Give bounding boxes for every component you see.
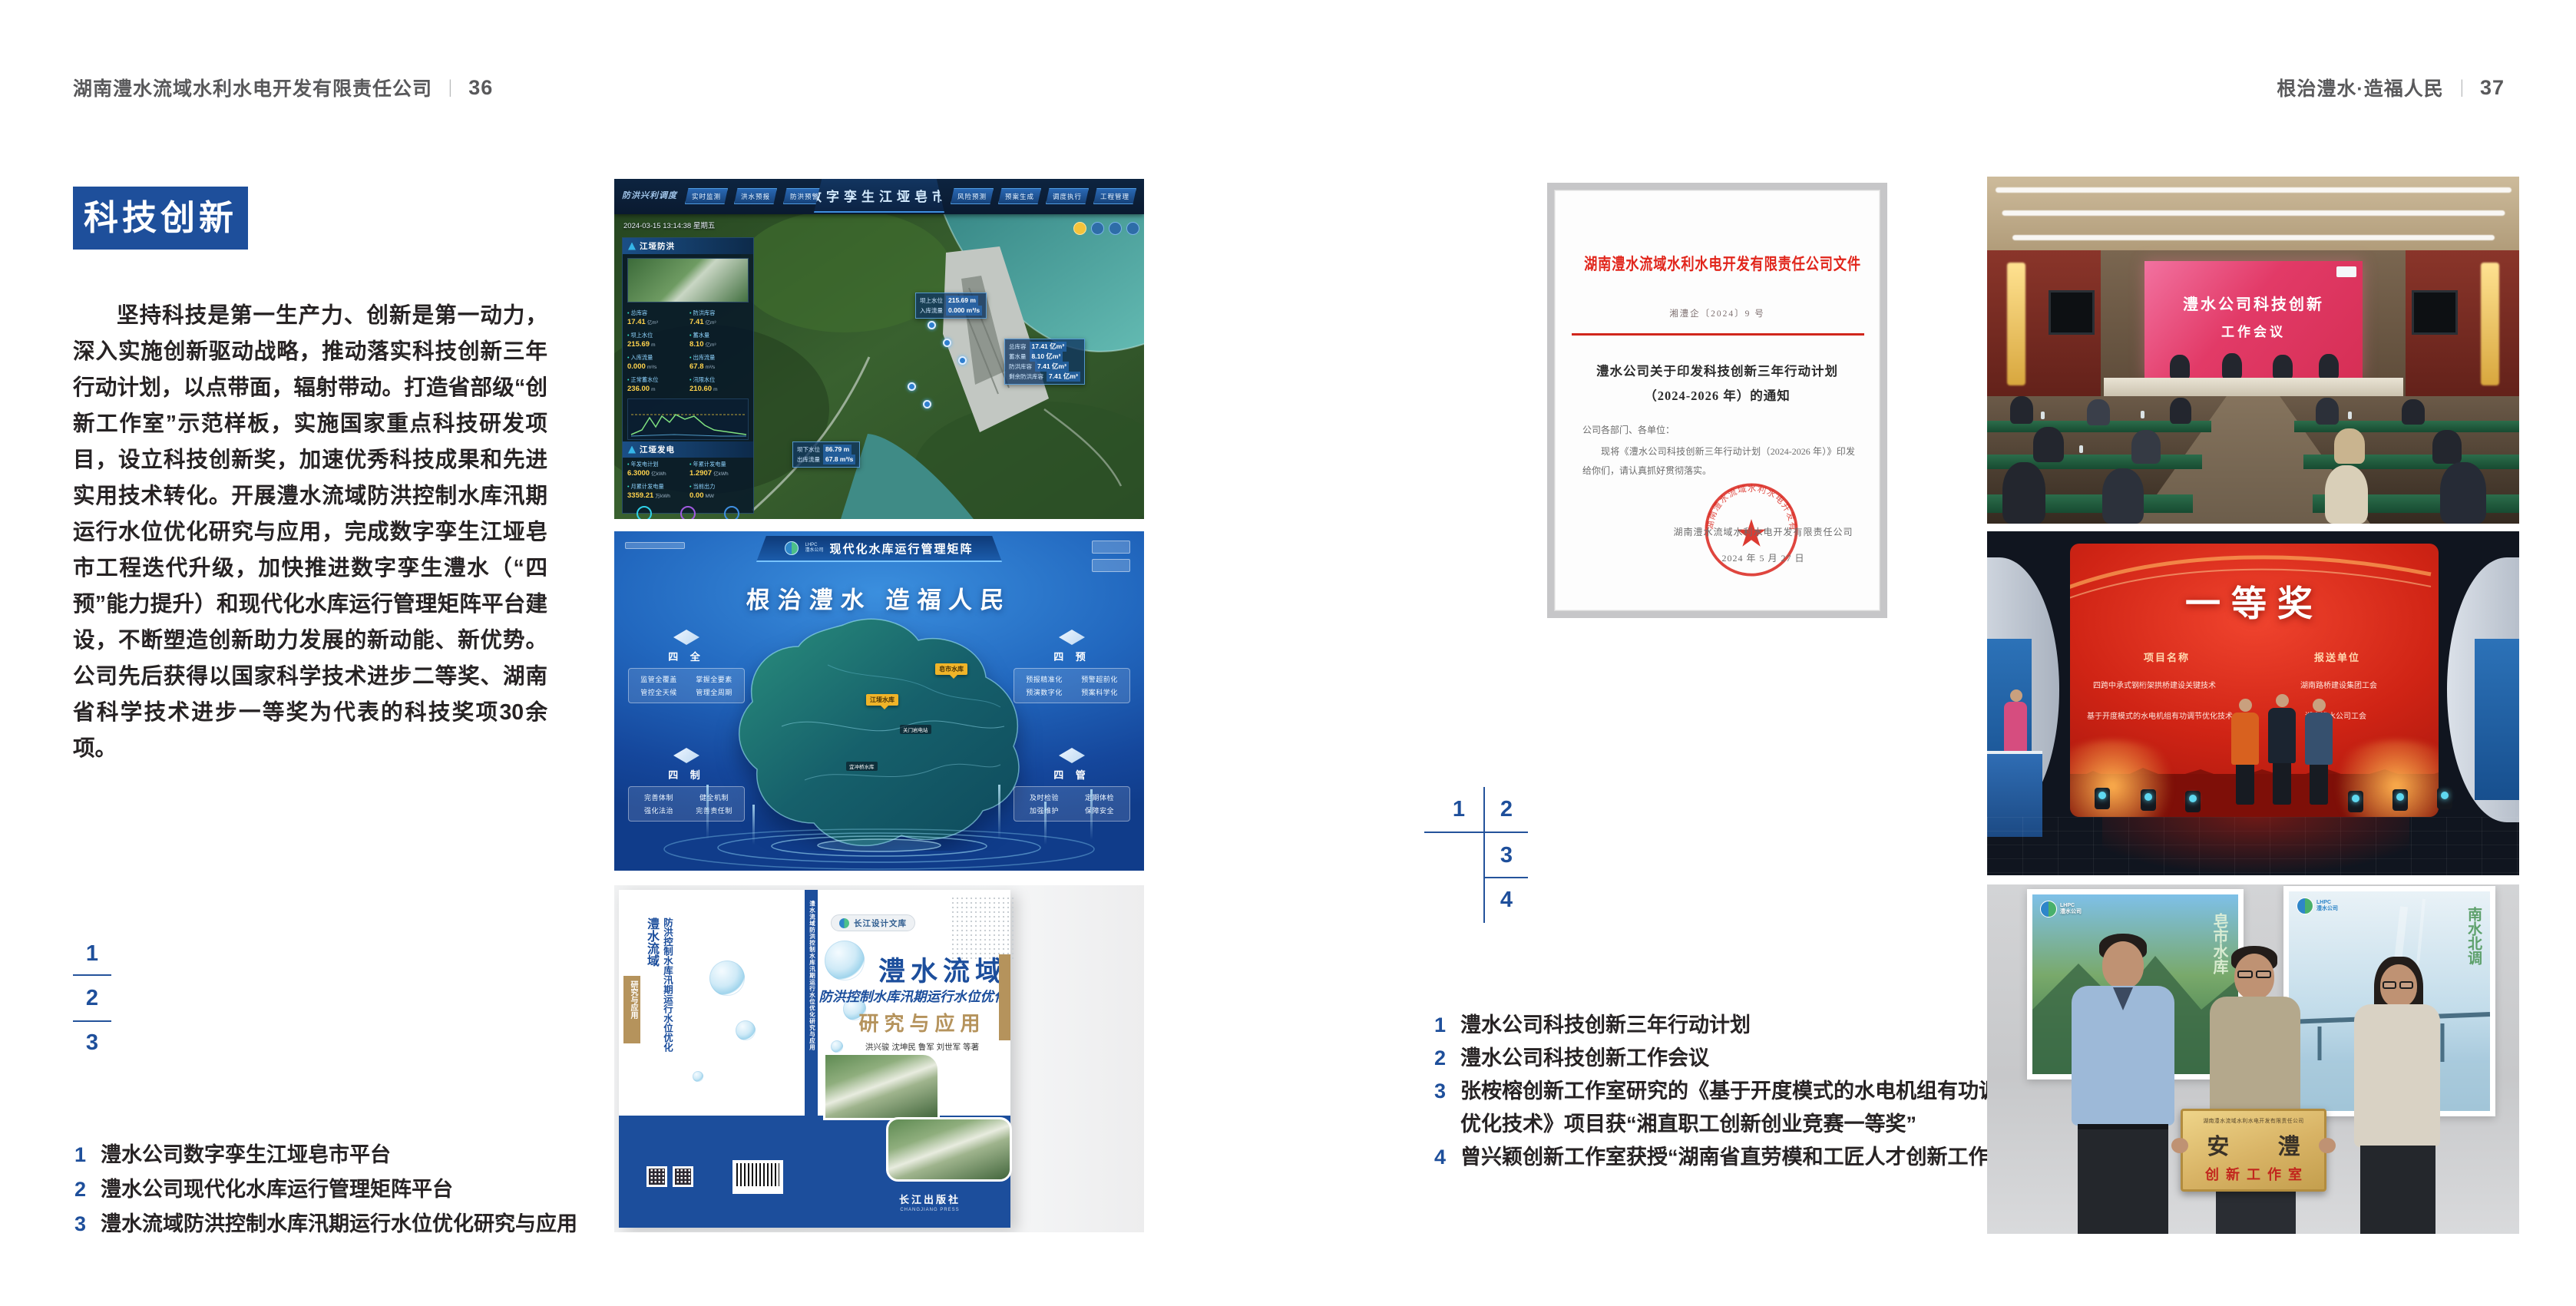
right-page-header: 根治澧水·造福人民 | 37: [2277, 74, 2505, 101]
power-panel-title: 江垭发电: [640, 444, 675, 455]
audience-person: [2402, 399, 2425, 425]
figure-index-2: 2: [73, 986, 111, 1011]
dashboard-title-plate: 数字孪生江垭皂市: [814, 179, 944, 213]
lhpc-logo-text: LHPC澧水公司: [805, 543, 823, 554]
stat-cell: 蓄水量8.10亿m³: [689, 330, 749, 351]
map-tag-guanmenyan[interactable]: 关门岩电站: [900, 725, 931, 734]
body-paragraph: 坚持科技是第一生产力、创新是第一动力，深入实施创新驱动战略，推动落实科技创新三年…: [73, 298, 547, 767]
index-divider: [73, 974, 111, 976]
stage-light-fixture: [2185, 791, 2201, 812]
award-row-project: 基于开度模式的水电机组有功调节优化技术: [2087, 709, 2233, 721]
light-pillar: [706, 785, 709, 840]
front-title-tail: 研究与应用: [849, 1008, 995, 1037]
page-number-36: 36: [468, 76, 493, 100]
audience-person: [2325, 465, 2368, 524]
figure-digital-twin-platform: 防洪兴利调度 实时监测 洪水预报 防洪预警 数字孪生江垭皂市 风险预测 预案生成…: [614, 179, 1144, 519]
caption-text: 澧水流域防洪控制水库汛期运行水位优化研究与应用: [101, 1208, 577, 1241]
stat-cell: 当前出力0.00MW: [689, 481, 749, 502]
caption-text: 澧水公司数字孪生江垭皂市平台: [101, 1139, 391, 1172]
caption-row: 4 曾兴颖创新工作室获授“湖南省直劳模和工匠人才创新工作室”: [1434, 1141, 2020, 1174]
audience-person: [2002, 462, 2045, 524]
tab-project-management[interactable]: 工程管理: [1093, 188, 1136, 204]
caption-row: 1 澧水公司数字孪生江垭皂市平台: [74, 1139, 391, 1172]
award-led-screen: 一等奖 项目名称 报送单位 四跨中承式钢桁架拱桥建设关键技术 湖南路桥建设集团工…: [2070, 544, 2439, 817]
panel-logo-icon: [628, 446, 636, 454]
audience-person: [2440, 462, 2486, 524]
water-level-chart: [627, 398, 749, 440]
gate-marker-icon[interactable]: [943, 339, 951, 347]
upstream-level-tag: 坝上水位215.69 m 入库流量0.000 m³/s: [915, 293, 987, 319]
water-bottle: [2079, 445, 2083, 453]
caption-row: 1 澧水公司科技创新三年行动计划: [1434, 1009, 1751, 1042]
audience-person: [2316, 398, 2339, 425]
caption-text: 曾兴颖创新工作室获授“湖南省直劳模和工匠人才创新工作室”: [1460, 1141, 2020, 1174]
document-page: 湖南澧水流域水利水电开发有限责任公司文件 湘澧企〔2024〕9 号 澧水公司关于…: [1554, 190, 1880, 611]
column-header-unit: 报送单位: [2314, 650, 2360, 664]
lhpc-logo-text: LHPC澧水公司: [2060, 903, 2082, 915]
caption-number: 3: [74, 1208, 88, 1241]
water-droplet: [736, 1020, 756, 1040]
photo-workshop-plaque: LHPC澧水公司 皂市水库 LHPC澧水公司 南水北调: [1987, 884, 2519, 1234]
index-divider: [73, 1020, 111, 1022]
header-divider: |: [2460, 77, 2463, 98]
turbine-gauges: [623, 504, 753, 519]
figure-official-document: 湖南澧水流域水利水电开发有限责任公司文件 湘澧企〔2024〕9 号 澧水公司关于…: [1547, 183, 1887, 618]
map-tag-jiangya[interactable]: 江垭水库: [866, 694, 898, 706]
gate-marker-icon[interactable]: [923, 400, 931, 408]
awardee-legs: [2310, 765, 2328, 805]
series-name: 长江设计文库: [854, 918, 907, 929]
screen-title-line2: 工作会议: [2144, 321, 2363, 340]
figure-index-1: 1: [73, 941, 111, 967]
gauge-icon: [724, 506, 739, 519]
header-divider: |: [448, 77, 451, 98]
caption-row: 3 张桉榕创新工作室研究的《基于开度模式的水电机组有功调节优化技术》项目获“湘直…: [1434, 1075, 2033, 1141]
publisher-name: 长江出版社: [872, 1192, 987, 1206]
water-bottle: [2041, 412, 2045, 419]
document-red-rule: [1572, 333, 1864, 336]
audience-person: [2432, 430, 2462, 464]
light-pillar: [1090, 789, 1093, 840]
figure-index-3: 3: [73, 1030, 111, 1056]
company-name: 湖南澧水流域水利水电开发有限责任公司: [73, 74, 432, 101]
stat-cell: 月累计发电量3359.21万kWh: [627, 481, 686, 502]
person-trousers: [2360, 1146, 2435, 1234]
matrix-button[interactable]: [1092, 541, 1130, 554]
flood-panel-header: 江垭防洪: [623, 238, 753, 254]
document-date: 2024 年 5 月 27 日: [1555, 551, 1880, 564]
tab-risk-prediction[interactable]: 风险预测: [951, 188, 994, 204]
gauge-icon: [637, 506, 652, 519]
awardee-blue-uniform: [2305, 713, 2333, 765]
front-cover-tan-strip: [999, 954, 1010, 1040]
glasses-icon: [2383, 981, 2396, 989]
stat-cell: 正常蓄水位236.00m: [627, 375, 686, 395]
gauge-icon: [680, 506, 696, 519]
stat-cell: 年发电计划6.3000亿kWh: [627, 459, 686, 480]
tab-flood-forecast[interactable]: 洪水预报: [734, 188, 777, 204]
dashboard-title: 数字孪生江垭皂市: [809, 186, 950, 205]
back-cover-title-tail: 研究与应用: [627, 980, 639, 1019]
stat-cell: 防洪库容7.41亿m³: [689, 308, 749, 329]
audience-person: [2033, 427, 2064, 462]
photo-award-ceremony: 一等奖 项目名称 报送单位 四跨中承式钢桁架拱桥建设关键技术 湖南路桥建设集团工…: [1987, 531, 2519, 875]
brochure-spread: 湖南澧水流域水利水电开发有限责任公司 | 36 科技创新 坚持科技是第一生产力、…: [0, 0, 2576, 1306]
page-slogan: 根治澧水·造福人民: [2277, 74, 2443, 101]
document-salutation: 公司各部门、各单位：: [1582, 421, 1855, 440]
poster-calligraphy: 皂市水库: [2208, 913, 2230, 974]
photo-innovation-meeting: 澧水公司科技创新 工作会议: [1987, 177, 2519, 524]
rostrum-person: [2170, 355, 2190, 379]
qr-code: [673, 1166, 693, 1187]
power-stats-grid: 年发电计划6.3000亿kWh 年累计发电量1.2907亿kWh 月累计发电量3…: [623, 458, 753, 504]
locate-icon[interactable]: [1109, 222, 1122, 235]
workshop-plaque: 湖南澧水流域水利水电开发有限责任公司 安 澧 创新工作室: [2181, 1109, 2326, 1192]
figure-index-1: 1: [1443, 797, 1474, 822]
audience-person: [2334, 428, 2365, 464]
isbn-barcode: [732, 1160, 783, 1194]
tab-realtime-monitoring[interactable]: 实时监测: [685, 188, 728, 204]
qr-code: [646, 1166, 667, 1187]
lhpc-logo-text: LHPC澧水公司: [2316, 900, 2338, 912]
person-trousers: [2078, 1126, 2168, 1234]
wall-tv-screen: [2049, 290, 2095, 335]
host-head: [2010, 689, 2022, 702]
capacity-tag: 总库容17.41 亿m³ 蓄水量8.10 亿m³ 防洪库容7.41 亿m³ 剩余…: [1004, 339, 1085, 385]
stage-light-fixture: [2392, 789, 2408, 811]
awardee-head: [2313, 699, 2326, 712]
light-pillar: [1044, 802, 1047, 845]
document-number: 湘澧企〔2024〕9 号: [1555, 307, 1880, 319]
panel-icon: [673, 748, 699, 763]
awardee-head: [2239, 699, 2252, 712]
spine-title: 澧水流域防洪控制水库汛期运行水位优化研究与应用: [809, 901, 817, 1131]
index-grid-vline: [1483, 787, 1485, 923]
poster-calligraphy: 南水北调: [2463, 907, 2484, 965]
panel-siquan: 四 全 监管全覆盖掌握全要素 管控全天候管理全周期: [628, 630, 745, 703]
caption-row: 3 澧水流域防洪控制水库汛期运行水位优化研究与应用: [74, 1208, 577, 1241]
caption-number: 2: [74, 1173, 88, 1206]
wall-tv-screen: [2412, 290, 2458, 335]
award-row-unit: 湖南路桥建设集团工会: [2300, 679, 2377, 690]
stage-side-screen: [2475, 639, 2519, 800]
stat-cell: 入库流量0.000m³/s: [627, 352, 686, 373]
plaque-name: 安 澧: [2183, 1129, 2324, 1161]
publisher-latin: CHANGJIANG PRESS: [872, 1208, 987, 1212]
screen-logo: [2336, 266, 2356, 277]
power-panel-header: 江垭发电: [623, 441, 753, 458]
audience-person: [2170, 398, 2191, 424]
stat-cell: 汛限水位210.60m: [689, 375, 749, 395]
floor-reflection: [2102, 817, 2409, 875]
lhpc-logo: LHPC澧水公司: [2297, 898, 2338, 914]
lhpc-logo-icon: [785, 541, 799, 555]
document-red-header: 湖南澧水流域水利水电开发有限责任公司文件: [1584, 252, 1850, 275]
tab-plan-generation[interactable]: 预案生成: [998, 188, 1041, 204]
series-badge: 长江设计文库: [831, 914, 915, 931]
awardee-orange-jacket: [2231, 713, 2259, 765]
ripple-rings-decoration: [649, 802, 1109, 871]
back-cover-title-sub: 防洪控制水库汛期运行水位优化: [660, 918, 675, 1094]
lhpc-logo-icon: [2040, 901, 2057, 918]
figure-index-2: 2: [1491, 797, 1522, 822]
stage-light-fixture: [2348, 791, 2363, 812]
belt: [2078, 1124, 2168, 1129]
panel-icon: [1059, 630, 1085, 645]
map-tag-zaoshi[interactable]: 皂市水库: [935, 663, 967, 675]
flood-panel-title: 江垭防洪: [640, 240, 675, 252]
caption-text: 张桉榕创新工作室研究的《基于开度模式的水电机组有功调节优化技术》项目获“湘直职工…: [1460, 1075, 2032, 1141]
audience-person: [2087, 399, 2110, 425]
light-pillar: [752, 805, 755, 845]
authors-line: 洪兴骏 沈坤民 鲁军 刘世军 等著: [842, 1041, 1003, 1053]
awardee-legs: [2236, 765, 2254, 805]
plaque-company-line: 湖南澧水流域水利水电开发有限责任公司: [2183, 1116, 2324, 1124]
awardee-head: [2276, 694, 2289, 707]
index-grid-hline: [1424, 832, 1528, 833]
panel-icon: [1059, 748, 1085, 763]
gate-marker-icon[interactable]: [928, 321, 936, 329]
downstream-level-tag: 坝下水位86.79 m 出库流量67.8 m³/s: [792, 441, 860, 468]
matrix-title: 现代化水库运行管理矩阵: [830, 541, 974, 557]
water-bottle: [2348, 412, 2352, 419]
caption-number: 1: [74, 1139, 88, 1172]
stage-light-fixture: [2141, 789, 2156, 811]
audience-person: [2010, 396, 2033, 424]
audience-person: [2102, 468, 2144, 524]
caption-row: 2 澧水公司现代化水库运行管理矩阵平台: [74, 1173, 453, 1206]
back-cover-title-main: 澧水流域: [642, 918, 660, 1071]
page-number-37: 37: [2480, 76, 2505, 100]
book-cover-spread: 澧水流域 防洪控制水库汛期运行水位优化 研究与应用 澧水流域防洪控制水库汛期运行…: [619, 890, 1010, 1228]
figure-index-4: 4: [1491, 888, 1522, 913]
figure-index-3: 3: [1491, 843, 1522, 868]
water-droplet: [709, 960, 745, 996]
plaque-subtitle: 创新工作室: [2183, 1164, 2324, 1184]
screen-title-line1: 澧水公司科技创新: [2144, 292, 2363, 314]
ceiling-light-strip: [1996, 187, 2512, 193]
caption-number: 3: [1434, 1075, 1448, 1141]
panel-icon: [673, 630, 699, 645]
caption-row: 2 澧水公司科技创新工作会议: [1434, 1042, 1709, 1075]
map-tag-yichongqiao[interactable]: 宜冲桥水库: [846, 762, 878, 771]
host-pink-dress: [2004, 702, 2027, 752]
powerstation-photo: [886, 1117, 1012, 1182]
glasses-icon: [2256, 970, 2271, 978]
matrix-timestamp-placeholder: [625, 542, 685, 549]
changjiang-design-logo-icon: [839, 918, 849, 928]
dam-thumbnail-image: [627, 258, 749, 303]
document-body: 现将《澧水公司科技创新三年行动计划（2024-2026 年）》印发给你们，请认真…: [1582, 442, 1855, 481]
glasses-icon: [2399, 981, 2413, 989]
rostrum-person: [2222, 353, 2242, 379]
wall-lamp: [2481, 263, 2499, 385]
rostrum-person: [2319, 354, 2339, 379]
caption-text: 澧水公司科技创新工作会议: [1460, 1042, 1709, 1075]
panel-siyu: 四 预 预报精准化预警超前化 预演数字化预案科学化: [1014, 630, 1130, 703]
lhpc-logo-icon: [2297, 898, 2313, 914]
figure-matrix-platform: LHPC澧水公司 现代化水库运行管理矩阵 根治澧水 造福人民 江垭水库 皂市水库…: [614, 531, 1144, 871]
ceiling-light-strip: [2012, 235, 2495, 240]
dam-photo: [823, 1053, 940, 1120]
gate-marker-icon[interactable]: [958, 356, 967, 365]
stat-cell: 年累计发电量1.2907亿kWh: [689, 459, 749, 480]
index-grid-hline: [1483, 877, 1528, 878]
matrix-slogan: 根治澧水 造福人民: [614, 580, 1144, 615]
woman-beige-top: [2354, 1004, 2440, 1147]
stat-cell: 坝上水位215.69m: [627, 330, 686, 351]
matrix-header: LHPC澧水公司 现代化水库运行管理矩阵: [756, 536, 1002, 562]
stage-light-fixture: [2437, 788, 2452, 809]
left-data-panel: 江垭防洪 总库容17.41亿m³ 防洪库容7.41亿m³ 坝上水位215.69m…: [622, 237, 754, 514]
matrix-button[interactable]: [1092, 559, 1130, 572]
awardee-legs: [2273, 763, 2291, 805]
wall-lamp: [2007, 263, 2025, 385]
alert-icon[interactable]: [1073, 222, 1086, 235]
caption-number: 1: [1434, 1009, 1448, 1042]
dashboard-mode-label: 防洪兴利调度: [622, 189, 677, 201]
stat-cell: 出库流量67.8m³/s: [689, 352, 749, 373]
figure-book-cover: 澧水流域 防洪控制水库汛期运行水位优化 研究与应用 澧水流域防洪控制水库汛期运行…: [614, 885, 1144, 1232]
back-cover-tan-block: 研究与应用: [623, 976, 640, 1043]
flood-stats-grid: 总库容17.41亿m³ 防洪库容7.41亿m³ 坝上水位215.69m 蓄水量8…: [623, 306, 753, 397]
stage-light-fixture: [2095, 788, 2110, 809]
document-title-line2: （2024-2026 年）的通知: [1555, 385, 1880, 404]
water-droplet: [693, 1071, 703, 1082]
lhpc-logo: LHPC澧水公司: [2040, 901, 2082, 918]
stat-cell: 总库容17.41亿m³: [627, 308, 686, 329]
caption-number: 2: [1434, 1042, 1448, 1075]
left-page-header: 湖南澧水流域水利水电开发有限责任公司 | 36: [73, 74, 493, 101]
document-signer: 湖南澧水流域水利水电开发有限责任公司: [1555, 525, 1880, 538]
dashboard-timestamp: 2024-03-15 13:14:38 星期五: [623, 220, 715, 230]
document-title-line1: 澧水公司关于印发科技创新三年行动计划: [1555, 361, 1880, 379]
caption-number: 4: [1434, 1141, 1448, 1174]
panel-logo-icon: [628, 243, 636, 250]
front-title-sub: 防洪控制水库汛期运行水位优化: [817, 987, 1009, 1006]
layers-icon[interactable]: [1091, 222, 1104, 235]
light-pillar: [998, 785, 1000, 840]
water-bottle: [2141, 411, 2144, 418]
column-header-project: 项目名称: [2144, 650, 2190, 664]
section-title: 科技创新: [73, 187, 248, 250]
publisher-block: 长江出版社 CHANGJIANG PRESS: [872, 1192, 987, 1212]
award-title: 一等奖: [2070, 576, 2439, 627]
person-head: [2102, 941, 2144, 989]
rostrum-person: [2273, 355, 2293, 379]
hand: [2171, 1138, 2188, 1153]
gate-marker-icon[interactable]: [908, 382, 916, 391]
user-icon[interactable]: [1126, 222, 1139, 235]
tab-dispatch-execution[interactable]: 调度执行: [1046, 188, 1089, 204]
front-title-main: 澧水流域: [857, 950, 1007, 989]
awardee-dark-suit: [2268, 708, 2296, 763]
audience-person: [2131, 430, 2161, 464]
glasses-icon: [2237, 970, 2253, 978]
award-row-project: 四跨中承式钢桁架拱桥建设关键技术: [2093, 679, 2216, 690]
caption-text: 澧水公司科技创新三年行动计划: [1460, 1009, 1751, 1042]
caption-text: 澧水公司现代化水库运行管理矩阵平台: [101, 1173, 453, 1206]
ceiling-light-strip: [2002, 210, 2505, 216]
hand: [2319, 1138, 2336, 1153]
